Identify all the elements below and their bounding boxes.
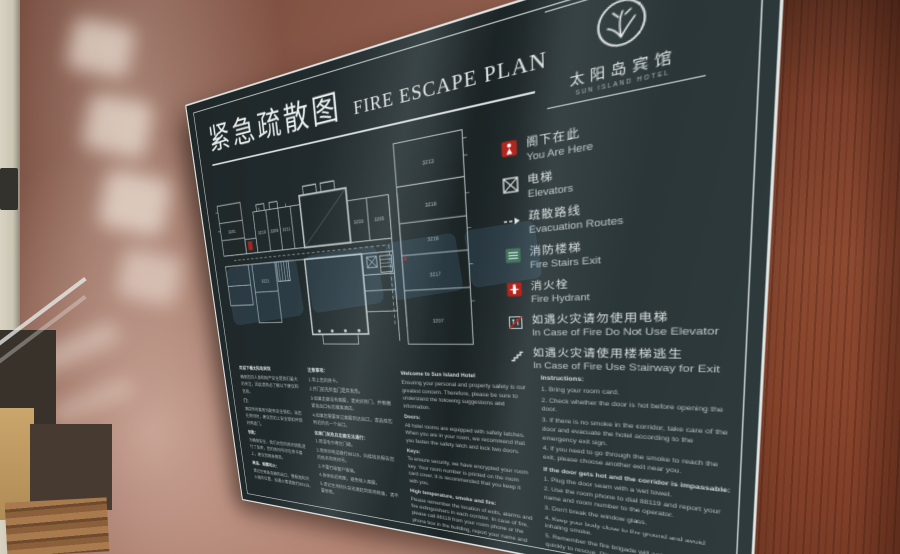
- photo-scene: 太阳岛宾馆 SUN ISLAND HOTEL 紧急疏散图 FIRE ESCAPE…: [0, 0, 900, 554]
- room-number: 3207: [433, 317, 444, 324]
- room-number: 3201: [228, 228, 236, 235]
- legend-en: In Case of Fire Do Not Use Elevator: [532, 325, 719, 338]
- door-hinge: [0, 168, 18, 210]
- fire-escape-plan-sign: 太阳岛宾馆 SUN ISLAND HOTEL 紧急疏散图 FIRE ESCAPE…: [185, 0, 788, 554]
- room-number: 3217: [429, 270, 441, 277]
- legend-en: In Case of Fire Use Stairway for Exit: [533, 360, 720, 376]
- room-number: 3219: [258, 229, 267, 236]
- floor-plan: 3201 3219 3209 3211 3203 3205 3221 3213 …: [205, 117, 500, 364]
- room-number: 3205: [374, 215, 386, 223]
- wood-dark-band: [852, 0, 900, 554]
- no-elevator-icon: [508, 315, 524, 330]
- legend-en: Fire Hydrant: [531, 291, 590, 305]
- column-en-welcome: Welcome to Sun Island Hotel Ensuring you…: [400, 370, 533, 548]
- wood-slats: [5, 497, 110, 554]
- legend-item-no-elevator: 如遇火灾请勿使用电梯 In Case of Fire Do Not Use El…: [508, 309, 746, 339]
- hotel-logo-block: 太阳岛宾馆 SUN ISLAND HOTEL: [545, 0, 709, 109]
- use-stairway-icon: [509, 348, 525, 362]
- legend: 阁下在此 You Are Here 电梯 Elevators 疏散路线 E: [501, 93, 756, 376]
- legend-zh: 如遇火灾请勿使用电梯: [532, 309, 720, 326]
- en-welcome-intro: Ensuring your personal and property safe…: [401, 379, 529, 419]
- fire-stairs-icon: [505, 247, 521, 263]
- fire-hydrant-icon: [506, 282, 522, 298]
- legend-zh: 消火栓: [530, 277, 589, 293]
- you-are-here-marker: [248, 241, 253, 250]
- room-number: 3216: [427, 234, 439, 242]
- column-zh-instructions: 注意事项： 1.带上您的房卡。 2.开门前先检查门是否发热。 3.如果走廊没有烟…: [307, 367, 404, 523]
- zh-welcome-intro: 确保您的人身和财产安全是我们最大的关注，因此请务必了解以下建议和信息。: [240, 374, 303, 399]
- room-number: 3213: [422, 157, 434, 166]
- zh-section-body: 酒店所有客房均配有安全锁扣，当您在房间时，建议您扣上安全锁扣并锁好两道门。: [244, 406, 306, 433]
- evacuation-route-icon: [504, 212, 520, 229]
- you-are-here-icon: [501, 139, 518, 158]
- legend-item-use-stairway: 如遇火灾请使用楼梯逃生 In Case of Fire Use Stairway…: [509, 347, 744, 376]
- elevator-icon: [502, 176, 519, 194]
- hydrant-marker: [404, 257, 407, 261]
- room-number: 3211: [282, 226, 291, 233]
- column-zh-welcome: 欢迎下榻太阳岛宾馆 确保您的人身和财产安全是我们最大的关注，因此请务必了解以下建…: [239, 365, 316, 506]
- legend-item-fire-hydrant: 消火栓 Fire Hydrant: [506, 268, 747, 306]
- column-en-instructions: Instructions: 1. Bring your room card. 2…: [541, 374, 740, 554]
- room-number: 3203: [353, 218, 363, 226]
- room-number: 3221: [261, 278, 269, 284]
- title-zh: 紧急疏散图: [206, 79, 344, 159]
- room-number: 3209: [270, 227, 279, 234]
- room-number: 3218: [425, 200, 437, 209]
- hotel-logo-icon: [594, 0, 649, 55]
